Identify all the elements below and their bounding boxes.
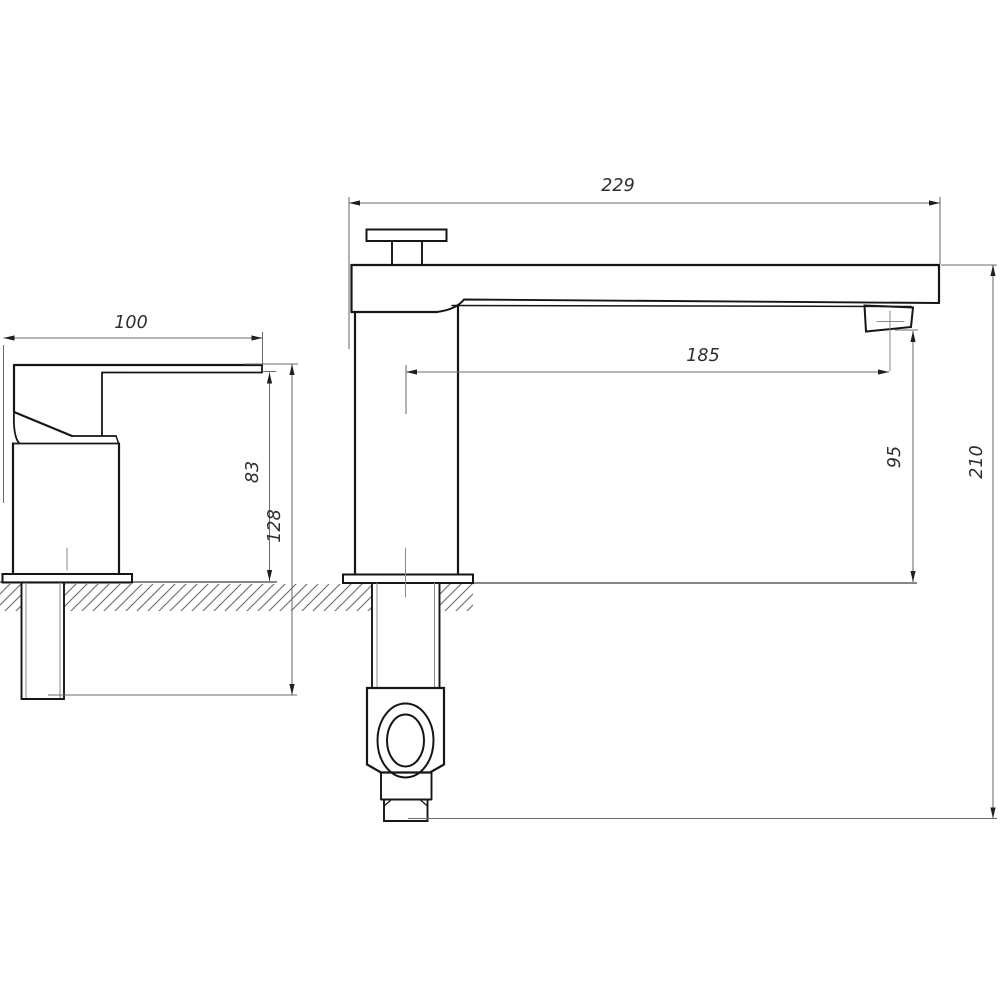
dim-95-label: 95 (885, 446, 905, 468)
dim-100-label: 100 (114, 313, 147, 333)
dimension-185: 185 (406, 346, 889, 414)
side-base-plate (3, 574, 133, 583)
side-handle-lever (14, 412, 72, 436)
dimension-100: 100 (4, 313, 263, 503)
front-shank-outer (372, 583, 440, 688)
dim-229-label: 229 (601, 176, 634, 196)
front-knob-stem (392, 241, 422, 265)
dim-210-label: 210 (967, 445, 987, 478)
dim-128-label: 128 (265, 509, 285, 542)
dim-185-label: 185 (686, 346, 719, 366)
side-shank-outer (22, 583, 65, 699)
dimensions: 229 100 185 83 (4, 176, 998, 819)
dimension-128: 128 (48, 364, 298, 695)
front-view (343, 230, 939, 822)
technical-drawing-canvas: 229 100 185 83 (0, 0, 1000, 1000)
front-spout-lip (452, 306, 911, 307)
drawing-page: 229 100 185 83 (0, 0, 1000, 1000)
aerator-centerlines (877, 311, 904, 371)
front-base-plate (343, 575, 473, 584)
front-shank-thread (377, 583, 435, 688)
side-view (3, 365, 263, 699)
front-nut-thread-relief (384, 801, 428, 807)
dimension-229: 229 (349, 176, 940, 349)
side-handle-notch (116, 436, 119, 443)
front-aerator (865, 306, 914, 332)
dim-83-label: 83 (243, 461, 263, 483)
side-shank-thread (26, 583, 60, 698)
hatch-band-middle (64, 584, 372, 611)
side-handle-arc (14, 412, 19, 443)
mounting-surface (0, 582, 917, 611)
front-knob-cap (367, 230, 447, 242)
hatch-band-left (0, 584, 22, 611)
front-valve-cap-inner (387, 715, 424, 767)
dimension-83: 83 (243, 372, 276, 582)
hatch-band-right (440, 584, 473, 611)
front-nut (384, 800, 428, 822)
